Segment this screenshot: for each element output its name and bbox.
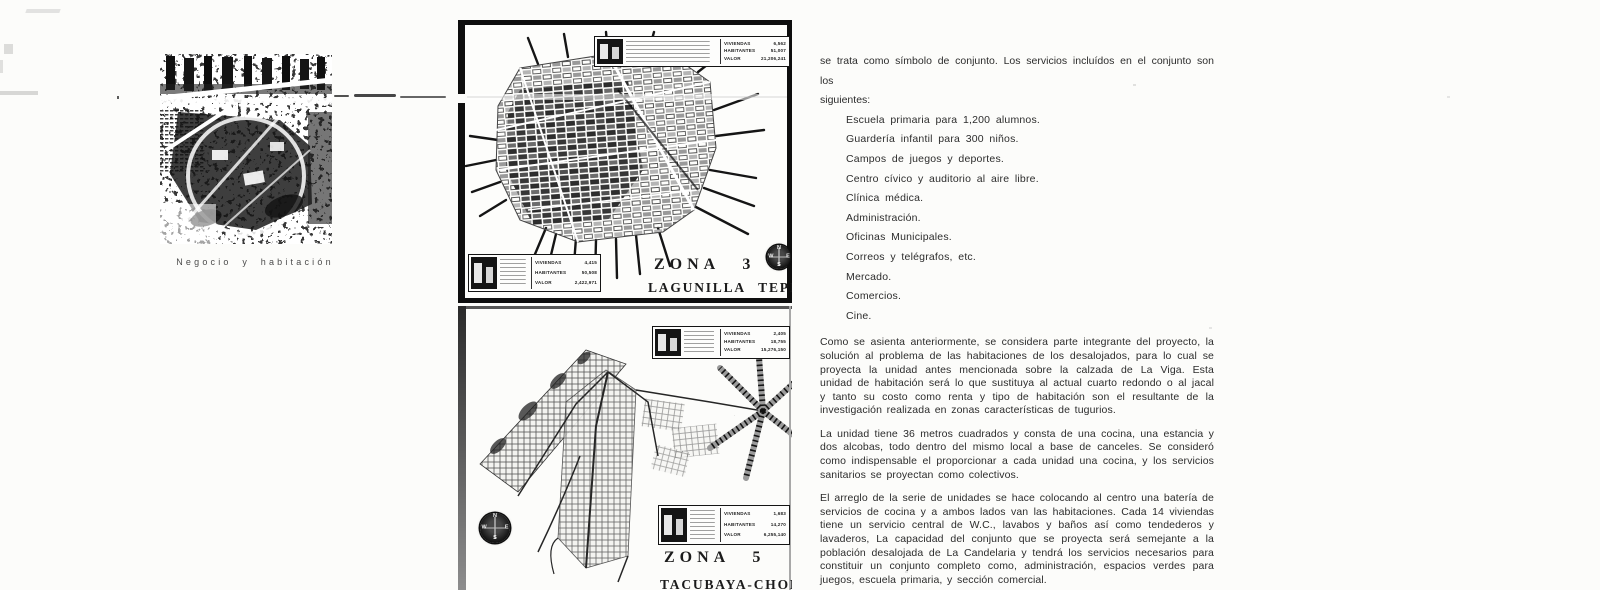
service-item: Guardería infantil para 300 niños. bbox=[846, 130, 1214, 150]
scan-smudge bbox=[25, 9, 60, 13]
service-item: Mercado. bbox=[846, 268, 1214, 288]
map-figure-zona-5: VIVIENDAS2,405HABITANTES18,755VALOR15,27… bbox=[458, 306, 792, 590]
infobox-stat-row: VIVIENDAS2,405 bbox=[724, 331, 786, 338]
scan-smudge bbox=[0, 60, 3, 73]
article-paragraph: Como se asienta anteriormente, se consid… bbox=[820, 336, 1214, 418]
compass-rose-icon: NE SW bbox=[480, 513, 510, 543]
compass-rose-icon: NE SW bbox=[767, 245, 791, 269]
infobox-stat-row: VALOR6,255,140 bbox=[724, 532, 786, 539]
photo-top-slats bbox=[160, 56, 332, 98]
service-item: Comercios. bbox=[846, 287, 1214, 307]
map-subtitle: TACUBAYA-CHORRITO bbox=[660, 577, 792, 590]
map-infobox-bottom: VIVIENDAS1,683HABITANTES14,270VALOR6,255… bbox=[658, 505, 790, 545]
infobox-stats: VIVIENDAS6,562HABITANTES51,007VALOR21,20… bbox=[720, 39, 787, 64]
infobox-fine-print bbox=[690, 510, 717, 540]
photo-halftone-art bbox=[160, 54, 332, 244]
scan-speck bbox=[1447, 96, 1450, 98]
infobox-stats: VIVIENDAS1,683HABITANTES14,270VALOR6,255… bbox=[720, 508, 787, 542]
service-item: Escuela primaria para 1,200 alumnos. bbox=[846, 111, 1214, 131]
infobox-stat-row: VALOR15,276,150 bbox=[724, 347, 786, 354]
service-item: Cine. bbox=[846, 307, 1214, 327]
article-paragraph: El arreglo de la serie de unidades se ha… bbox=[820, 492, 1214, 587]
fold-line bbox=[400, 96, 446, 98]
service-item: Clínica médica. bbox=[846, 189, 1214, 209]
service-item: Oficinas Municipales. bbox=[846, 228, 1214, 248]
service-item: Administración. bbox=[846, 209, 1214, 229]
article-intro: se trata como símbolo de conjunto. Los s… bbox=[820, 52, 1214, 91]
infobox-stat-row: HABITANTES50,508 bbox=[535, 270, 597, 277]
infobox-stat-row: VIVIENDAS1,683 bbox=[724, 511, 786, 518]
infobox-stat-row: VALOR21,206,241 bbox=[724, 56, 786, 63]
fold-line bbox=[354, 94, 396, 97]
scan-smudge bbox=[4, 44, 13, 54]
infobox-fine-print bbox=[500, 259, 528, 287]
article-column: se trata como símbolo de conjunto. Los s… bbox=[820, 52, 1214, 587]
fold-line bbox=[334, 95, 349, 97]
scanned-document-page: Negocio y habitación bbox=[0, 0, 1600, 590]
map-title: ZONA 3 bbox=[654, 256, 755, 274]
scan-speck bbox=[117, 96, 119, 99]
map-infobox-top: VIVIENDAS6,562HABITANTES51,007VALOR21,20… bbox=[594, 36, 790, 67]
article-intro-continued: siguientes: bbox=[820, 91, 1214, 111]
scan-smudge bbox=[0, 91, 38, 95]
service-item: Campos de juegos y deportes. bbox=[846, 150, 1214, 170]
infobox-stat-row: VIVIENDAS6,562 bbox=[724, 41, 786, 48]
infobox-stat-row: VIVIENDAS4,415 bbox=[535, 260, 597, 267]
infobox-logo-icon bbox=[471, 257, 497, 289]
infobox-stat-row: HABITANTES51,007 bbox=[724, 48, 786, 55]
service-item: Correos y telégrafos, etc. bbox=[846, 248, 1214, 268]
infobox-stat-row: HABITANTES18,755 bbox=[724, 339, 786, 346]
infobox-stat-row: HABITANTES14,270 bbox=[724, 522, 786, 529]
map-subtitle: LAGUNILLA TEPITO bbox=[648, 280, 792, 296]
map-frame bbox=[458, 306, 466, 590]
map-title: ZONA 5 bbox=[664, 549, 765, 567]
infobox-stats: VIVIENDAS2,405HABITANTES18,755VALOR15,27… bbox=[720, 329, 787, 356]
service-item: Centro cívico y auditorio al aire libre. bbox=[846, 170, 1214, 190]
infobox-fine-print bbox=[626, 41, 717, 62]
services-list: Escuela primaria para 1,200 alumnos.Guar… bbox=[820, 111, 1214, 327]
photo-negocio-y-habitacion bbox=[160, 54, 332, 244]
map-infobox-bottom: VIVIENDAS4,415HABITANTES50,508VALOR2,422… bbox=[468, 254, 601, 292]
infobox-fine-print bbox=[684, 331, 717, 354]
infobox-logo-icon bbox=[597, 39, 623, 64]
map-figure-zona-3: VIVIENDAS6,562HABITANTES51,007VALOR21,20… bbox=[458, 20, 792, 303]
infobox-logo-icon bbox=[655, 329, 681, 356]
photo-caption: Negocio y habitación bbox=[160, 257, 350, 267]
map-infobox-top: VIVIENDAS2,405HABITANTES18,755VALOR15,27… bbox=[652, 326, 790, 359]
infobox-stat-row: VALOR2,422,971 bbox=[535, 280, 597, 287]
article-paragraphs: Como se asienta anteriormente, se consid… bbox=[820, 336, 1214, 587]
infobox-logo-icon bbox=[661, 508, 687, 542]
infobox-stats: VIVIENDAS4,415HABITANTES50,508VALOR2,422… bbox=[531, 257, 598, 289]
article-paragraph: La unidad tiene 36 metros cuadrados y co… bbox=[820, 428, 1214, 482]
